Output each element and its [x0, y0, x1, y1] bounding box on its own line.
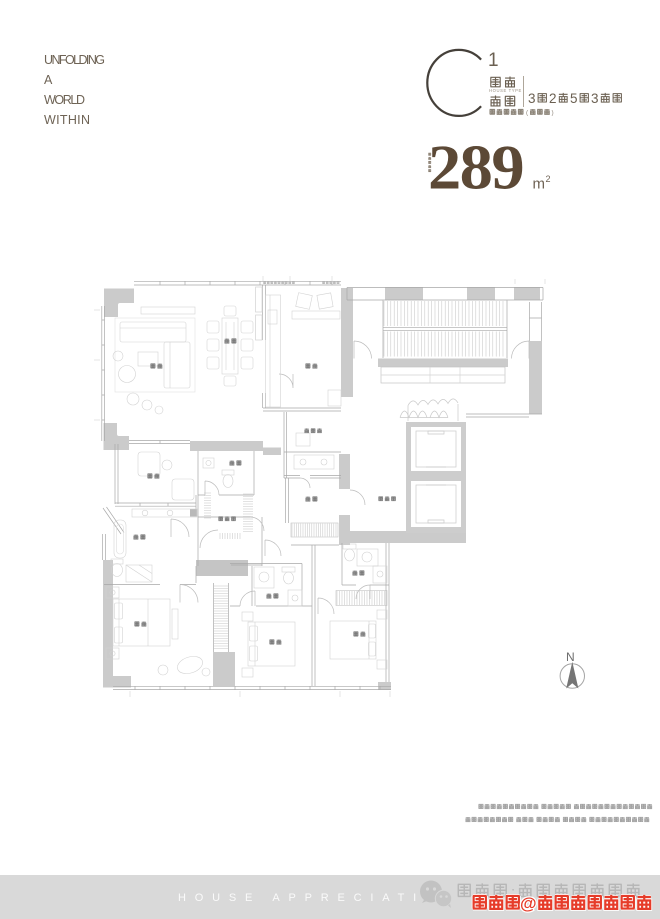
svg-text:3: 3 [528, 91, 536, 106]
svg-text:HOUSE APPRECIATION: HOUSE APPRECIATION [178, 892, 459, 904]
svg-text:@: @ [520, 894, 537, 913]
svg-text:A: A [44, 73, 53, 87]
svg-text:m: m [533, 176, 546, 193]
svg-text:289: 289 [428, 133, 523, 203]
svg-text:UNFOLDING: UNFOLDING [44, 53, 105, 67]
svg-text:): ) [552, 110, 554, 117]
svg-text:N: N [566, 650, 575, 664]
svg-text:2: 2 [549, 91, 557, 106]
svg-text:2: 2 [546, 174, 551, 184]
svg-text:WITHIN: WITHIN [44, 113, 90, 127]
svg-text:5: 5 [570, 91, 578, 106]
svg-text:(: ( [526, 110, 529, 117]
svg-text:HOUSE TYPE: HOUSE TYPE [489, 88, 522, 93]
svg-text:3: 3 [591, 91, 599, 106]
svg-text:1: 1 [488, 50, 499, 71]
svg-text:WORLD: WORLD [44, 93, 85, 107]
